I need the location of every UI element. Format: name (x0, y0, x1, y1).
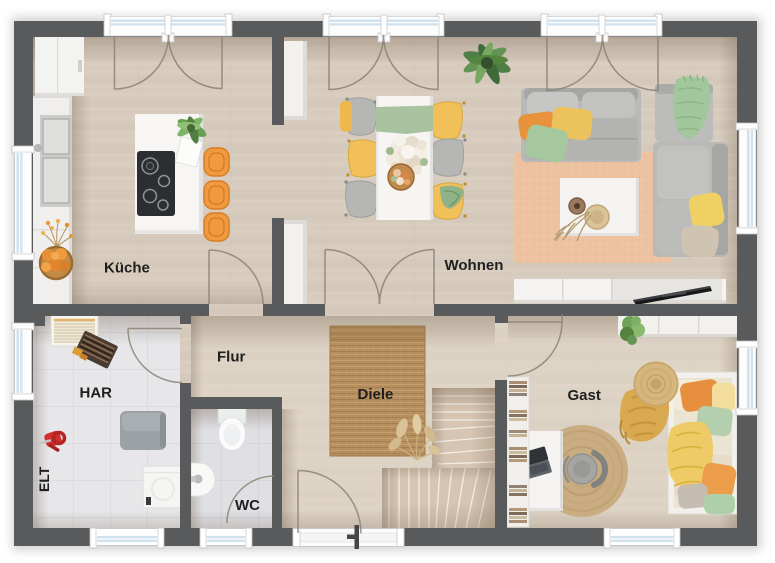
svg-text:Küche: Küche (104, 260, 150, 277)
svg-text:ELT: ELT (36, 466, 52, 492)
svg-text:Gast: Gast (568, 387, 601, 404)
svg-text:HAR: HAR (80, 385, 113, 402)
svg-text:Wohnen: Wohnen (445, 257, 504, 274)
svg-text:Flur: Flur (217, 349, 245, 366)
svg-text:WC: WC (235, 497, 260, 514)
svg-text:Diele: Diele (358, 386, 394, 403)
